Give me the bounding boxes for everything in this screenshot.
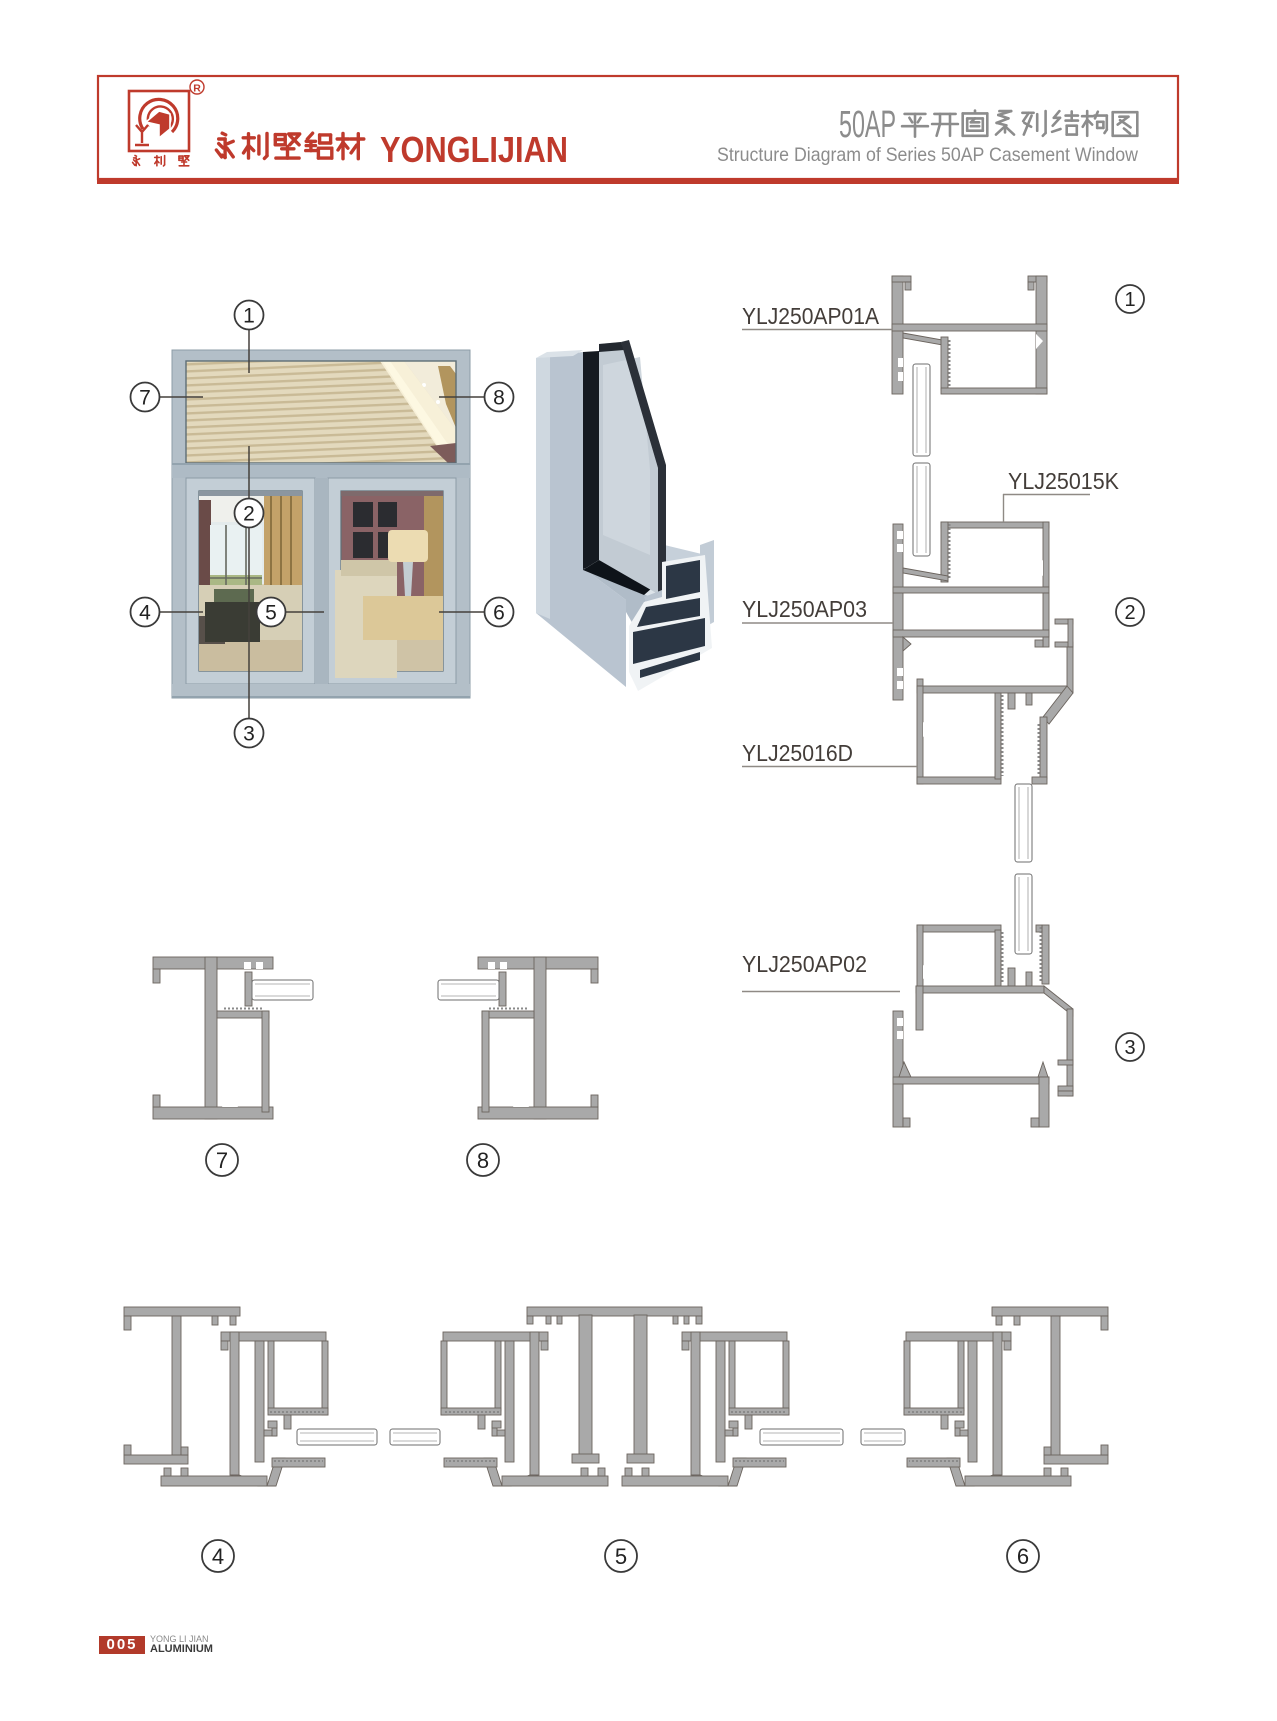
svg-text:YONGLIJIAN: YONGLIJIAN: [380, 129, 568, 170]
svg-text:7: 7: [216, 1148, 228, 1173]
svg-text:YLJ250AP03: YLJ250AP03: [742, 596, 867, 622]
svg-text:5: 5: [615, 1544, 627, 1569]
svg-text:6: 6: [493, 602, 505, 625]
svg-text:1: 1: [243, 305, 255, 328]
svg-text:7: 7: [139, 387, 151, 410]
svg-text:6: 6: [1017, 1544, 1029, 1569]
svg-text:3: 3: [1124, 1037, 1135, 1059]
svg-text:2: 2: [243, 503, 255, 526]
svg-text:3: 3: [243, 723, 255, 746]
svg-text:1: 1: [1124, 289, 1135, 311]
svg-text:2: 2: [1124, 602, 1135, 624]
svg-text:YLJ250AP02: YLJ250AP02: [742, 951, 867, 977]
svg-text:8: 8: [493, 387, 505, 410]
svg-text:8: 8: [477, 1148, 489, 1173]
svg-text:4: 4: [139, 602, 151, 625]
svg-text:YLJ25016D: YLJ25016D: [742, 740, 853, 766]
svg-text:Structure Diagram of Series 50: Structure Diagram of Series 50AP Casemen…: [717, 144, 1139, 166]
svg-text:YLJ250AP01A: YLJ250AP01A: [742, 303, 880, 329]
svg-text:5: 5: [265, 602, 277, 625]
svg-text:R: R: [193, 83, 201, 95]
svg-text:4: 4: [212, 1544, 224, 1569]
svg-text:YLJ25015K: YLJ25015K: [1008, 468, 1120, 494]
svg-text:50AP: 50AP: [839, 104, 896, 146]
